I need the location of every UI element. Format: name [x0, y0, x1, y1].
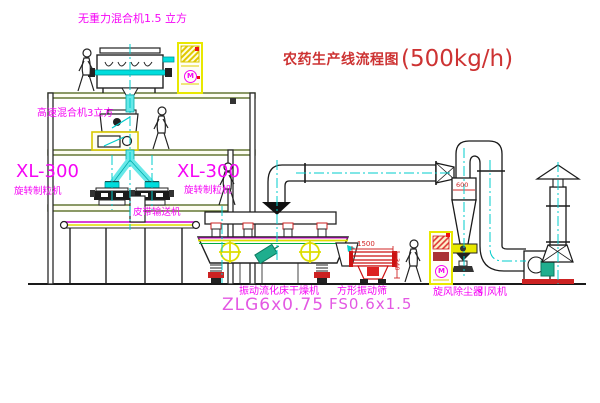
exhaust-duct — [262, 161, 454, 215]
dimension-sieve-length: 1500 — [357, 241, 375, 248]
title-text: 农药生产线流程图 — [283, 49, 399, 69]
label-granulator-right-name: 旋转制粒机 — [184, 186, 232, 196]
pesticide-line-flow-diagram: 农药生产线流程图 (500kg/h) 无重力混合机1.5 立方 高速混合机3立方… — [0, 0, 600, 403]
label-granulator-left-name: 旋转制粒机 — [14, 187, 62, 197]
person-ground — [405, 240, 421, 282]
label-granulator-left-model: XL-300 — [16, 163, 79, 181]
motor-mark-cabinet-top: M — [184, 70, 197, 83]
person-second-floor — [153, 107, 169, 149]
label-granulator-right-model: XL-300 — [177, 163, 240, 181]
dimension-sieve-height: 340 — [394, 258, 401, 270]
label-high-speed-mixer: 高速混合机3立方 — [37, 109, 113, 119]
diagram-title: 农药生产线流程图 (500kg/h) — [283, 46, 513, 72]
title-capacity: (500kg/h) — [401, 46, 513, 72]
motor-mark-cabinet-bottom: M — [435, 265, 448, 278]
label-fluid-bed-dryer-model: ZLG6x0.75 — [222, 297, 324, 314]
belt-conveyor — [61, 222, 200, 284]
dryer-feet — [208, 265, 330, 283]
gravity-free-mixer — [88, 48, 174, 95]
label-induced-draft-fan: 引风机 — [477, 288, 507, 298]
label-gravity-mixer: 无重力混合机1.5 立方 — [78, 13, 187, 24]
label-square-sieve-model: FS0.6x1.5 — [329, 297, 412, 312]
dimension-cyclone-outlet: 600 — [456, 182, 468, 189]
label-belt-conveyor: 皮带输送机 — [133, 208, 181, 218]
label-cyclone: 旋风除尘器 — [433, 288, 483, 298]
control-cabinet-top — [178, 43, 202, 93]
